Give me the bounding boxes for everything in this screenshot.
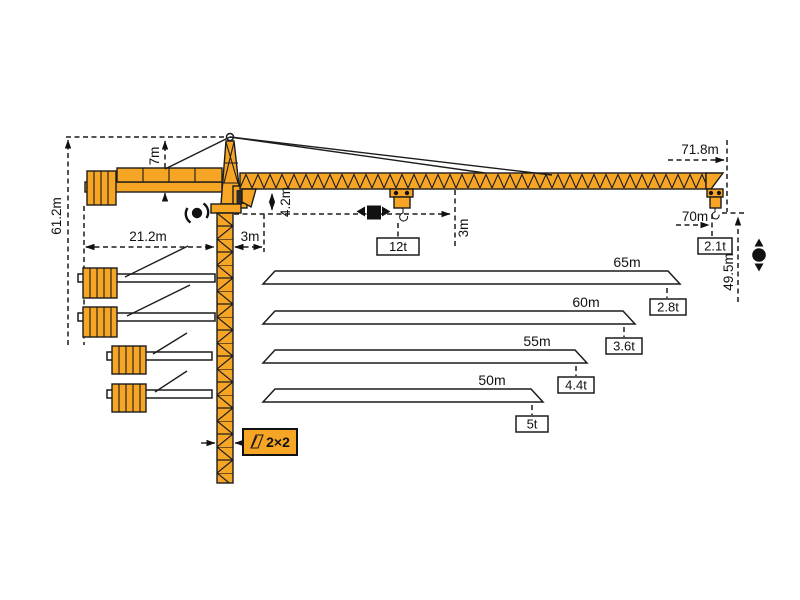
- jib-drop-label: 4.2m: [278, 187, 293, 217]
- slewing-platform: [211, 204, 241, 213]
- jib-option-capacity: 3.6t: [613, 339, 635, 354]
- counterjib-option-row: [107, 371, 212, 412]
- mast-lattice: [217, 213, 233, 483]
- hook-approach-label: 3m: [456, 219, 471, 238]
- jib-option-length: 60m: [572, 294, 599, 310]
- jib-option-capacity: 5t: [527, 417, 538, 432]
- jib-option-capacity: 2.8t: [657, 300, 679, 315]
- trolley-main: [390, 189, 413, 221]
- jib-option-row: 65m 2.8t: [263, 254, 686, 315]
- counterjib-option-row: [107, 333, 212, 374]
- crane-diagram-svg: 12t 2.1t 2×2 61.2m 7m 21.2m 3m 4.2m 3m 7…: [0, 0, 800, 600]
- total-height-label: 61.2m: [49, 197, 64, 235]
- max-capacity-label: 12t: [389, 239, 407, 254]
- jib-option-row: 50m 5t: [263, 372, 548, 432]
- jib-length-label: 71.8m: [681, 142, 719, 157]
- jib-option-length: 65m: [613, 254, 640, 270]
- jib-option-capacity: 4.4t: [565, 378, 587, 393]
- jib-tip: [706, 173, 723, 189]
- slewing-icon: [186, 204, 208, 223]
- crane-load-diagram: 12t 2.1t 2×2 61.2m 7m 21.2m 3m 4.2m 3m 7…: [0, 0, 800, 600]
- pendant-lines: [165, 137, 552, 175]
- hook-height-label: 49.5m: [721, 253, 736, 291]
- counterjib-options: [78, 246, 215, 412]
- trolley-tip: [707, 189, 723, 219]
- counterjib-length-label: 21.2m: [129, 229, 167, 244]
- tip-capacity-badge: 2.1t: [698, 238, 732, 254]
- jib-lattice: [240, 173, 706, 189]
- mast-section-label: 2×2: [266, 434, 290, 450]
- max-radius-label: 70m: [682, 209, 708, 224]
- max-capacity-badge: 12t: [377, 238, 419, 255]
- tip-capacity-label: 2.1t: [704, 239, 726, 254]
- hoist-icon: [752, 239, 766, 272]
- jib-options: 65m 2.8t 60m 3.6t 55m 4.4t 50m 5t: [263, 254, 686, 432]
- counterjib: [85, 168, 222, 205]
- trolley-travel-icon: [357, 206, 391, 220]
- jib-option-length: 55m: [523, 333, 550, 349]
- hook-icon: [712, 208, 719, 219]
- root-offset-label: 3m: [241, 229, 260, 244]
- jib-option-row: 60m 3.6t: [263, 294, 642, 354]
- apex-height-label: 7m: [147, 147, 162, 166]
- jib-option-row: 55m 4.4t: [263, 333, 594, 393]
- counterjib-option-row: [78, 246, 215, 298]
- jib-option-length: 50m: [478, 372, 505, 388]
- mast-section-badge: 2×2: [243, 429, 297, 455]
- jib: [240, 173, 723, 207]
